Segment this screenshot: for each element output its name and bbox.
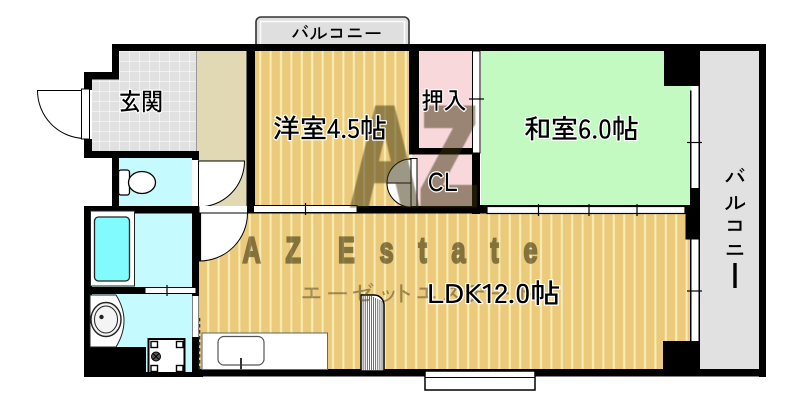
svg-text:AZ: AZ <box>243 230 326 271</box>
svg-text:Estate: Estate <box>338 230 562 271</box>
